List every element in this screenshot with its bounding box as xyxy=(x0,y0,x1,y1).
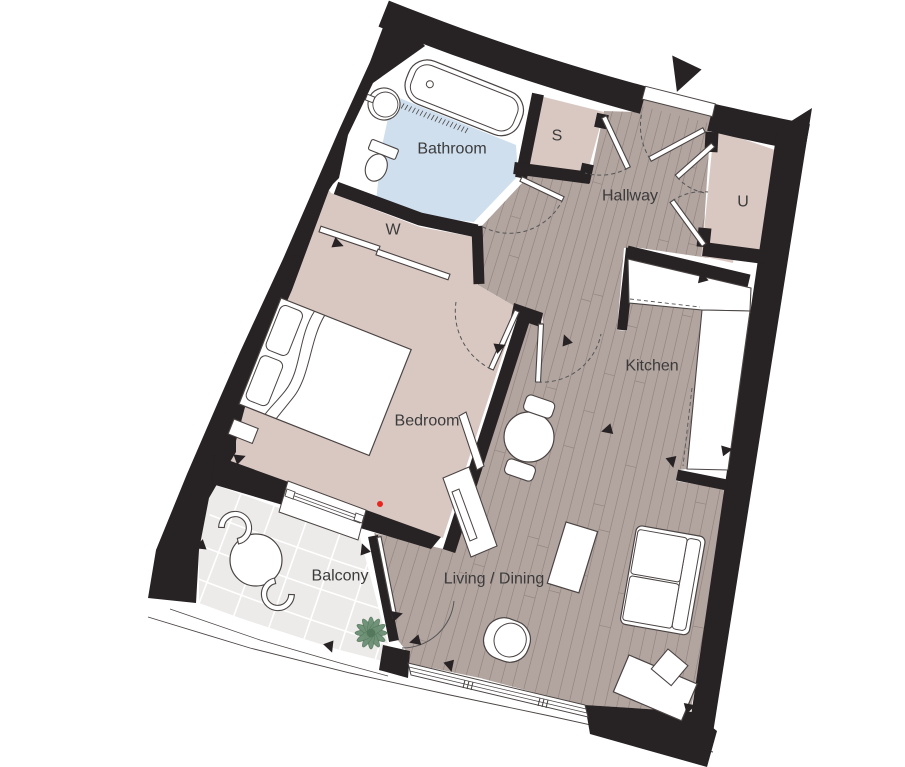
svg-text:Living / Dining: Living / Dining xyxy=(444,571,545,588)
svg-text:Hallway: Hallway xyxy=(602,188,658,205)
svg-text:Bedroom: Bedroom xyxy=(395,413,460,430)
svg-text:Kitchen: Kitchen xyxy=(625,358,678,375)
svg-text:W: W xyxy=(385,222,401,239)
svg-text:S: S xyxy=(552,128,563,145)
svg-text:Bathroom: Bathroom xyxy=(417,141,486,158)
svg-text:U: U xyxy=(737,194,749,211)
svg-text:Balcony: Balcony xyxy=(312,568,369,585)
